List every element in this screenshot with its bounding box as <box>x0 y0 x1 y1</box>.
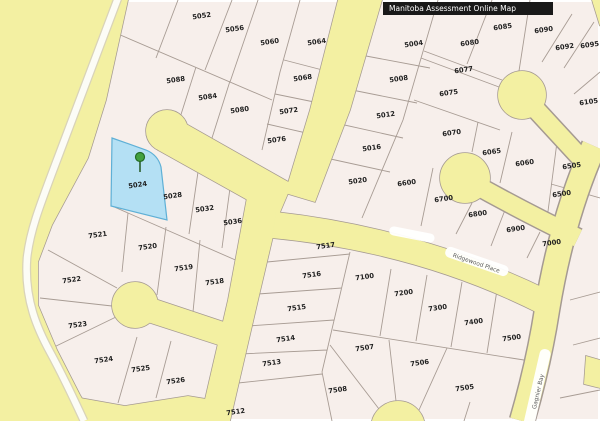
parcel-label-5088[interactable]: 5088 <box>166 75 186 86</box>
parcel-label-6060[interactable]: 6060 <box>515 158 535 169</box>
parcel-label-6095[interactable]: 6095 <box>580 40 600 51</box>
parcel-label-6090[interactable]: 6090 <box>534 25 554 36</box>
parcel-label-7512[interactable]: 7512 <box>226 407 246 418</box>
parcel-label-5016[interactable]: 5016 <box>362 143 382 154</box>
parcel-label-6077[interactable]: 6077 <box>454 65 474 76</box>
parcel-label-7300[interactable]: 7300 <box>428 303 448 314</box>
parcel-label-7505[interactable]: 7505 <box>455 383 475 394</box>
parcel-label-6092[interactable]: 6092 <box>555 42 575 53</box>
parcel-label-5060[interactable]: 5060 <box>260 37 280 48</box>
parcel-label-6065[interactable]: 6065 <box>482 147 502 158</box>
parcel-label-6075[interactable]: 6075 <box>439 88 459 99</box>
parcel-label-7507[interactable]: 7507 <box>355 343 375 354</box>
parcel-label-7514[interactable]: 7514 <box>276 334 296 345</box>
parcel-label-6600[interactable]: 6600 <box>397 178 417 189</box>
parcel-label-7506[interactable]: 7506 <box>410 358 430 369</box>
parcel-label-7515[interactable]: 7515 <box>287 303 307 314</box>
parcel-label-7518[interactable]: 7518 <box>205 277 225 288</box>
parcel-label-7200[interactable]: 7200 <box>394 288 414 299</box>
parcel-label-7522[interactable]: 7522 <box>62 275 82 286</box>
parcel-label-5084[interactable]: 5084 <box>198 92 218 103</box>
parcel-label-6900[interactable]: 6900 <box>506 224 526 235</box>
parcel-label-5012[interactable]: 5012 <box>376 110 396 121</box>
parcel-label-7517[interactable]: 7517 <box>316 241 336 252</box>
parcel-label-7525[interactable]: 7525 <box>131 364 151 375</box>
parcel-label-6070[interactable]: 6070 <box>442 128 462 139</box>
parcel-label-7521[interactable]: 7521 <box>88 230 108 241</box>
map-canvas[interactable]: Ridgewood Place Gagnier Bay 505250565060… <box>0 0 600 421</box>
parcel-label-5004[interactable]: 5004 <box>404 39 424 50</box>
parcel-label-5028[interactable]: 5028 <box>163 191 183 202</box>
parcel-label-7519[interactable]: 7519 <box>174 263 194 274</box>
parcel-label-5036[interactable]: 5036 <box>223 217 243 228</box>
parcel-label-5052[interactable]: 5052 <box>192 11 212 22</box>
map-title-badge: Manitoba Assessment Online Map <box>383 2 553 15</box>
parcel-label-5064[interactable]: 5064 <box>307 37 327 48</box>
parcel-label-6700[interactable]: 6700 <box>434 194 454 205</box>
parcel-label-7524[interactable]: 7524 <box>94 355 114 366</box>
parcel-label-5056[interactable]: 5056 <box>225 24 245 35</box>
parcel-label-6080[interactable]: 6080 <box>460 38 480 49</box>
parcel-label-7400[interactable]: 7400 <box>464 317 484 328</box>
parcel-label-5072[interactable]: 5072 <box>279 106 299 117</box>
parcel-label-5080[interactable]: 5080 <box>230 105 250 116</box>
parcel-label-6085[interactable]: 6085 <box>493 22 513 33</box>
map-viewport[interactable]: Ridgewood Place Gagnier Bay 505250565060… <box>0 0 600 421</box>
parcel-label-5008[interactable]: 5008 <box>389 74 409 85</box>
parcel-label-7513[interactable]: 7513 <box>262 358 282 369</box>
parcel-label-7500[interactable]: 7500 <box>502 333 522 344</box>
parcel-label-5020[interactable]: 5020 <box>348 176 368 187</box>
parcel-label-7508[interactable]: 7508 <box>328 385 348 396</box>
parcel-label-7520[interactable]: 7520 <box>138 242 158 253</box>
parcel-label-7516[interactable]: 7516 <box>302 270 322 281</box>
parcel-label-7523[interactable]: 7523 <box>68 320 88 331</box>
parcel-label-6800[interactable]: 6800 <box>468 209 488 220</box>
parcel-label-5068[interactable]: 5068 <box>293 73 313 84</box>
parcel-label-7526[interactable]: 7526 <box>166 376 186 387</box>
parcel-label-7100[interactable]: 7100 <box>355 272 375 283</box>
parcel-label-6105[interactable]: 6105 <box>579 97 599 108</box>
parcel-label-5032[interactable]: 5032 <box>195 204 215 215</box>
parcel-label-5076[interactable]: 5076 <box>267 135 287 146</box>
